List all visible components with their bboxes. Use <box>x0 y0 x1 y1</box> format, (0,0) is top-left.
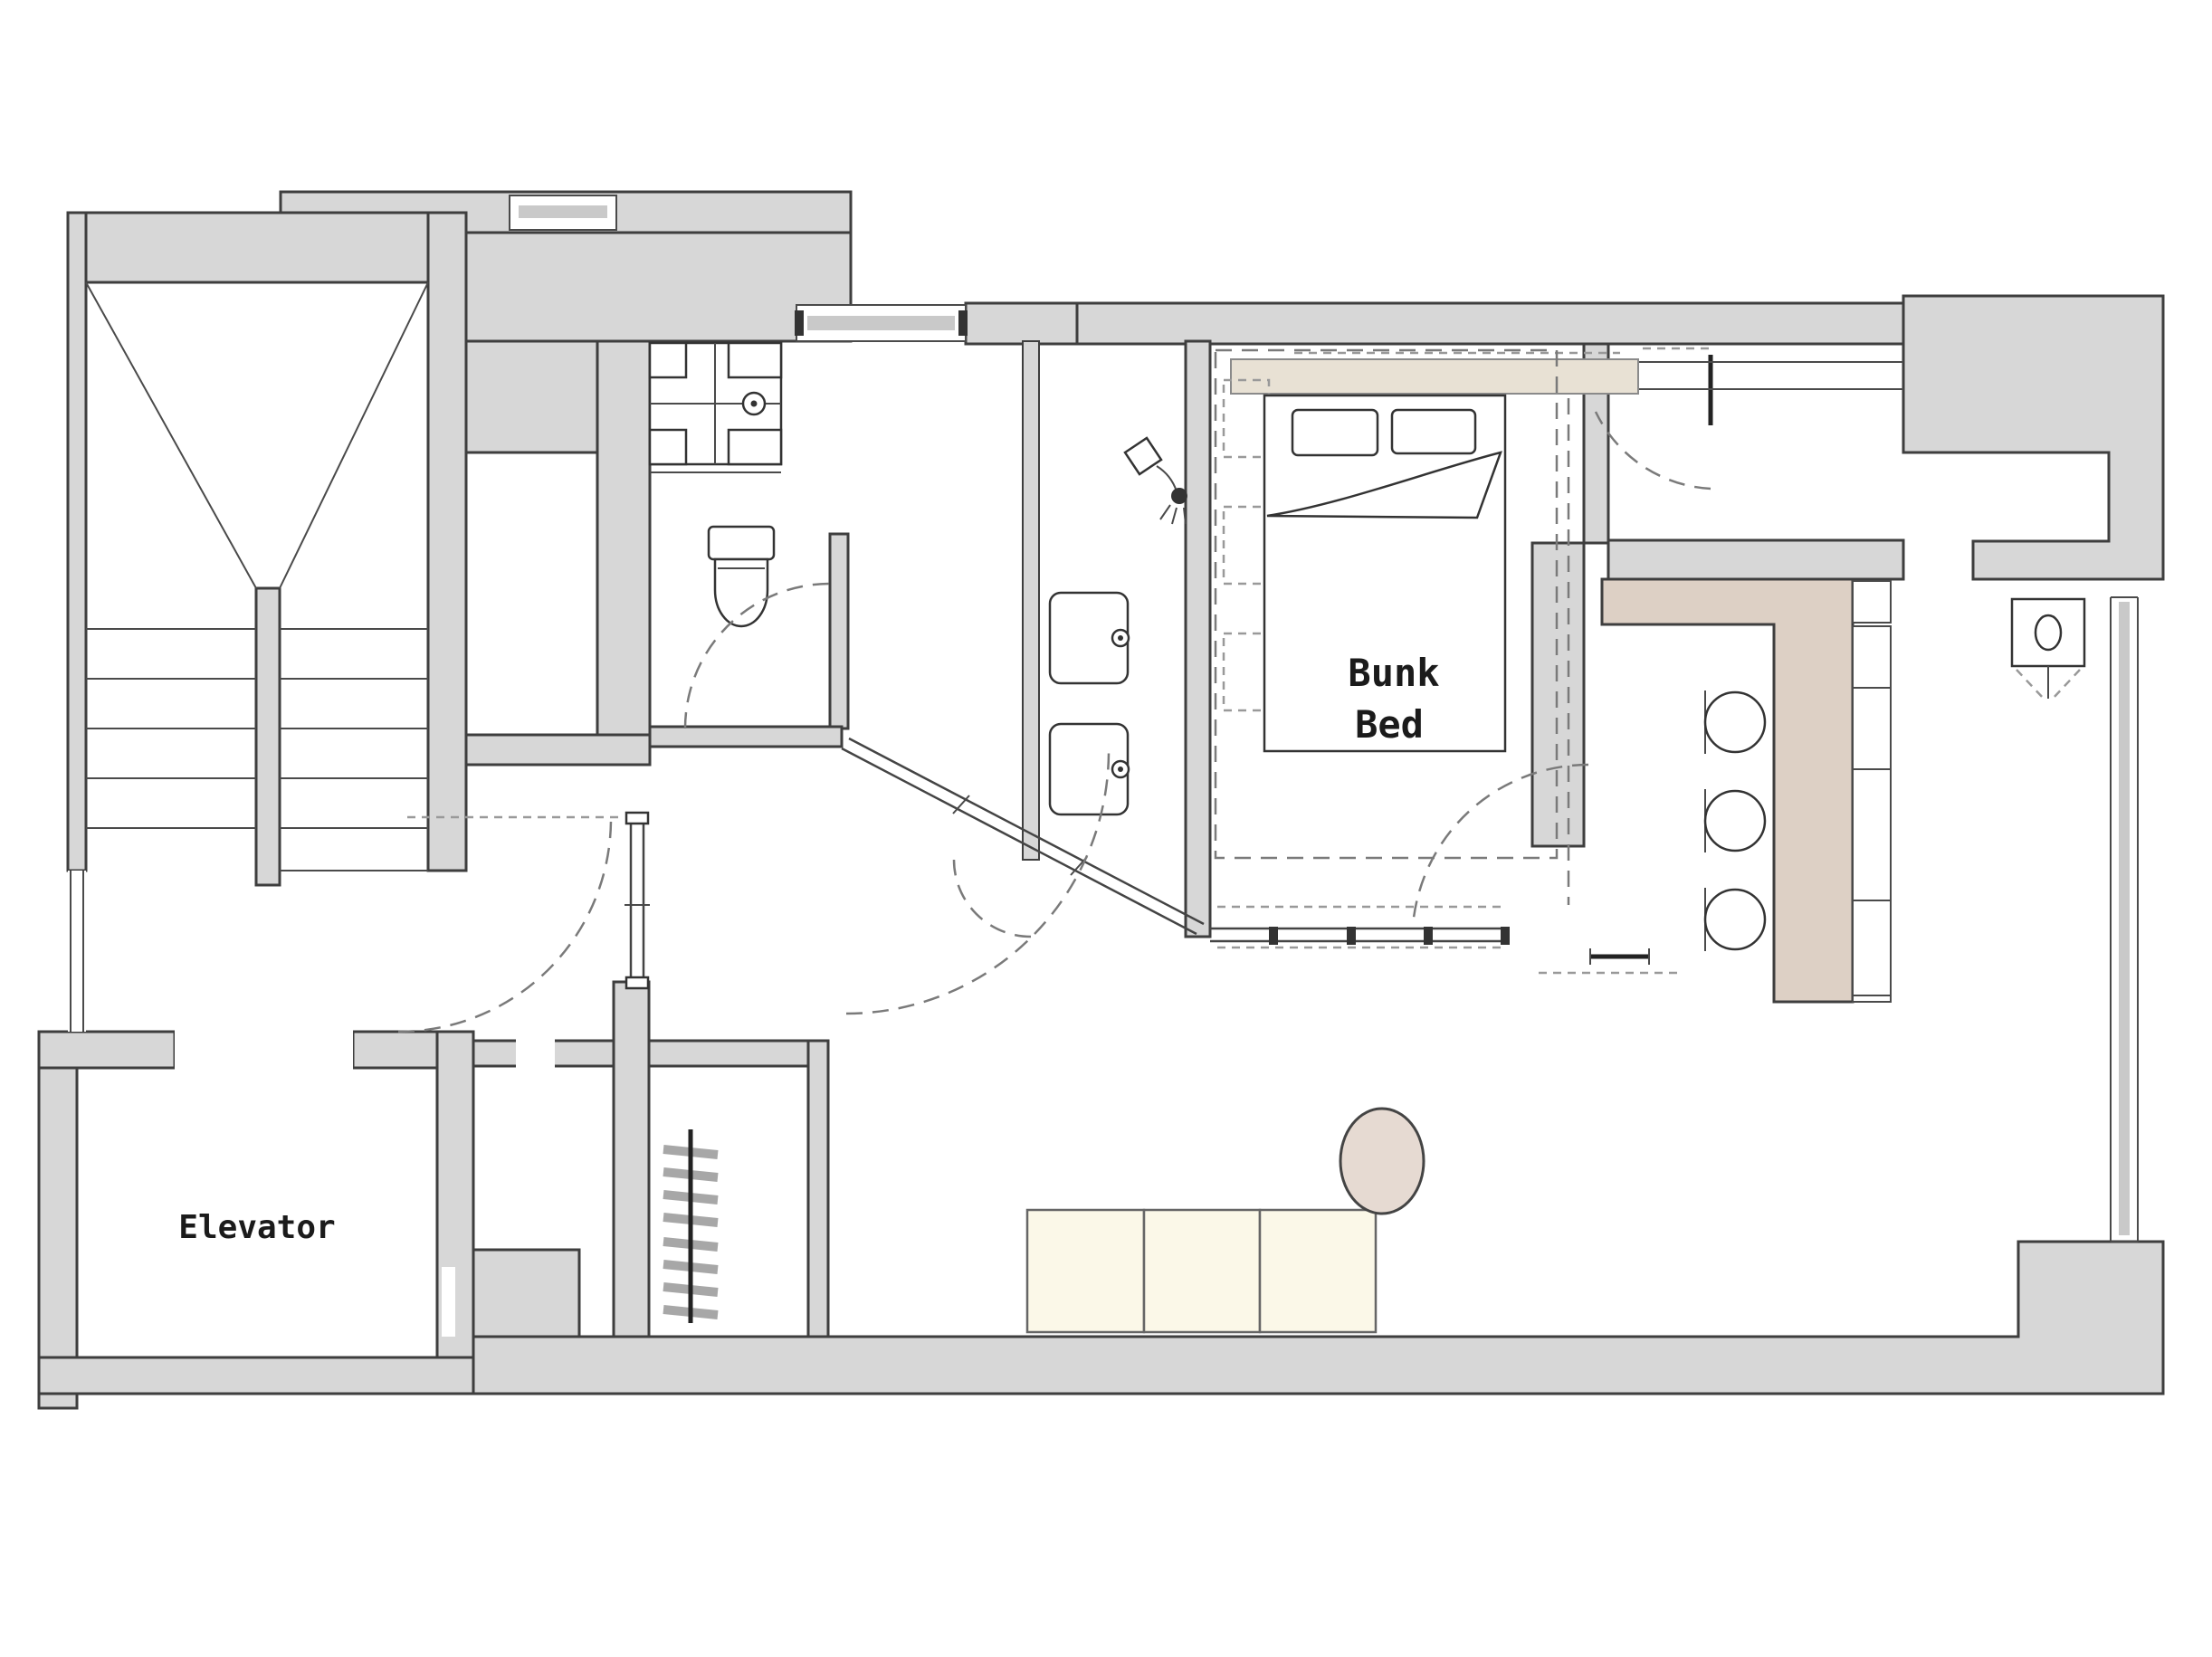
wall-segment <box>68 213 86 871</box>
wardrobe-band <box>1231 359 1638 394</box>
wall-segment <box>466 341 597 452</box>
pillow <box>1292 410 1378 455</box>
floor-plan-canvas: Bunk Bed <box>0 0 2212 1657</box>
wall-segment <box>830 534 848 729</box>
wall-segment <box>1532 543 1584 846</box>
shower-icon <box>1125 438 1187 524</box>
sofa-cushion <box>1260 1210 1376 1332</box>
window-right <box>2111 597 2138 1242</box>
wall-niche <box>442 1267 455 1337</box>
bunk-bed-label-line1: Bunk <box>1348 651 1439 695</box>
bar-stools <box>1705 690 1765 951</box>
sofa-cushion <box>1027 1210 1144 1332</box>
wall-segment <box>1077 303 1903 344</box>
window-left <box>68 871 86 1032</box>
threshold-bar <box>1539 948 1683 973</box>
stair-steps-right <box>280 629 428 871</box>
wall-segment <box>466 735 650 765</box>
ladder-icon <box>1224 380 1269 710</box>
bar-stool-icon <box>1705 692 1765 752</box>
wall-segment <box>1023 341 1039 860</box>
wall-segment <box>39 1032 77 1408</box>
wall-segment <box>597 341 650 738</box>
wall-segment <box>1186 341 1210 937</box>
living-room <box>1027 1109 1424 1332</box>
stair-flight-line <box>86 282 256 588</box>
bar-stool-icon <box>1705 791 1765 851</box>
entry-corner-wall <box>1903 296 2163 579</box>
elevator-label: Elevator <box>178 1209 335 1246</box>
bed <box>1264 395 1505 751</box>
wall-segment <box>1608 540 1903 579</box>
door-opening <box>516 1039 555 1068</box>
sofa <box>1027 1210 1376 1332</box>
stair-divider-wall <box>256 588 280 885</box>
stair-steps-left <box>86 629 256 828</box>
wall-segment <box>68 213 466 282</box>
vanity-sinks <box>1050 593 1129 814</box>
wall-segment <box>39 1357 473 1394</box>
bunk-bed-room: Bunk Bed <box>1210 350 1683 973</box>
wall-segment <box>614 982 649 1337</box>
toilet-icon <box>709 527 774 626</box>
kitchen-sink-icon <box>2012 599 2084 699</box>
stair-flight-line <box>280 282 428 588</box>
bunk-bed-label-line2: Bed <box>1355 702 1424 747</box>
floor-plan-page: Bunk Bed <box>0 0 2212 1657</box>
elevator-door-opening <box>175 1030 353 1070</box>
wall-segment <box>466 233 851 341</box>
kitchen-cabinets <box>1853 581 1891 1002</box>
bar-stool-icon <box>1705 890 1765 949</box>
wall-segment <box>966 303 1077 344</box>
wall-segment <box>39 1032 175 1068</box>
wall-segment <box>428 213 466 871</box>
door-swing-arc <box>954 860 1031 937</box>
wall-segment <box>808 1041 828 1337</box>
round-table <box>1340 1109 1424 1214</box>
window-top-small <box>510 195 616 230</box>
pillow <box>1392 410 1475 453</box>
sofa-cushion <box>1144 1210 1260 1332</box>
wall-segment <box>473 1250 579 1337</box>
door-swing-arc <box>1596 412 1711 489</box>
glass-partition-bottom <box>1210 927 1510 945</box>
window-top-main <box>795 305 968 341</box>
wall-segment <box>650 727 842 747</box>
radiator-icon <box>663 1129 718 1323</box>
washing-machine-icon <box>650 343 781 472</box>
kitchen <box>1602 579 2084 1002</box>
